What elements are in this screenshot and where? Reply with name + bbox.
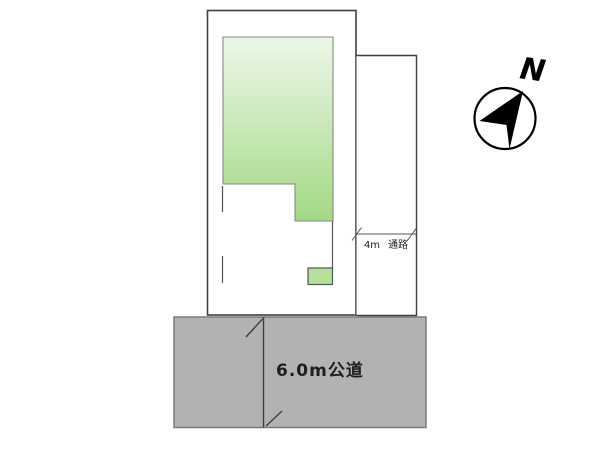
north-label: N	[518, 53, 547, 88]
passage-label: 4m 通路	[354, 239, 418, 253]
passage-strip	[357, 56, 417, 316]
passage-name-text: 通路	[388, 239, 408, 253]
entrance-block	[308, 268, 333, 285]
site-plan-drawing	[0, 0, 600, 450]
road-label: 6.0m公道	[276, 361, 364, 381]
site-plan-canvas: 4m 通路 6.0m公道 N	[0, 0, 600, 450]
passage-width-text: 4m	[364, 239, 380, 253]
